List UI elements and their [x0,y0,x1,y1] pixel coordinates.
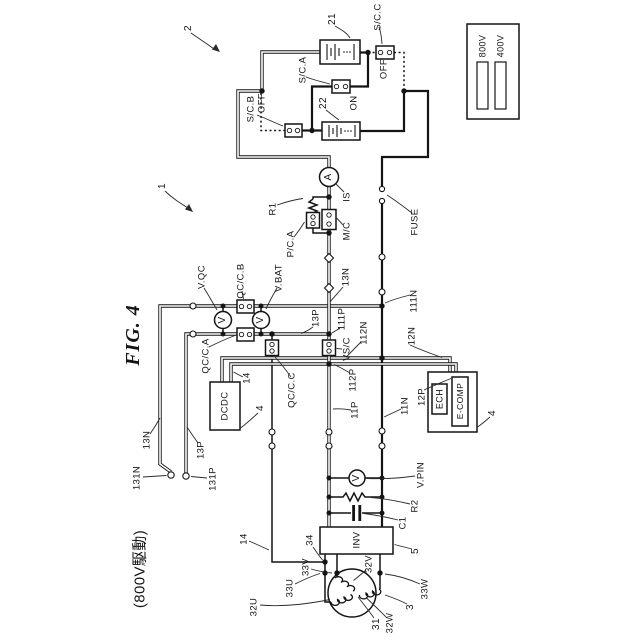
voltage-legend [467,24,519,119]
capacitor-plate [358,505,361,521]
patent-figure: FIG. 4(800V駆動)2121S/C.COFFS/C.AON22S/C.B… [0,0,640,640]
circuit-diagram-canvas [0,0,640,640]
bus-112n [222,358,450,382]
charge-port-terminal-131n [168,472,174,478]
contactor-vsc [323,340,336,356]
battery-main-loop [238,52,329,169]
inverter [320,527,393,554]
contactor-qccc [266,340,279,356]
battery-22 [322,122,360,140]
aux-unit-4 [428,372,477,432]
motor-31 [328,569,376,617]
leader-lines [143,26,490,618]
charge-port-terminal-131p [183,473,189,479]
fuse-terminal [379,186,384,191]
contactor-sca [332,80,350,93]
contactor-pca [307,213,320,229]
capacitor-plate [352,505,355,521]
ech-heater [432,384,447,414]
contactor-mc [322,210,336,230]
contactor-qcca [237,328,254,341]
fuse-terminal [379,198,384,203]
e-comp-compressor [452,377,468,426]
contactor-qccb [237,300,254,313]
bus-13p [186,334,330,473]
qc-cc-wire-14 [272,334,325,562]
contactor-scc [376,46,394,59]
battery-21 [320,40,360,64]
voltmeter-vbat [253,312,270,329]
contactor-scb [285,124,302,137]
voltmeter-vqc [215,312,232,329]
bus-112p [231,364,456,382]
voltmeter-vpin [349,470,365,486]
dcdc-converter [210,382,240,430]
